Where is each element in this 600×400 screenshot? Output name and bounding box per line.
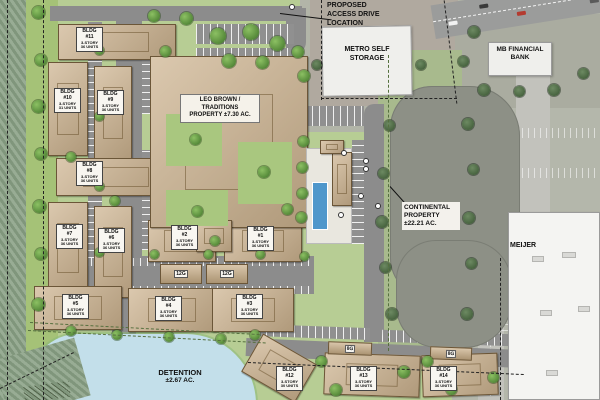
tree — [33, 200, 46, 213]
meijer-boundary-west — [500, 258, 501, 400]
callout-marker — [358, 193, 364, 199]
building-label-3: BLDG#3 3-STORY36 UNITS — [236, 294, 263, 319]
tree — [468, 164, 479, 175]
building-label-6: BLDG#6 3-STORY36 UNITS — [98, 228, 125, 253]
garage-label: 8G — [446, 349, 457, 357]
mb-financial-bank-label: MB FINANCIAL BANK — [490, 46, 550, 62]
tree — [180, 12, 193, 25]
proposed-access-drive-label: PROPOSED ACCESS DRIVE LOCATION — [327, 2, 405, 28]
tree — [462, 118, 474, 130]
metro-boundary-south — [321, 98, 457, 99]
car — [479, 3, 489, 8]
callout-marker — [289, 4, 295, 10]
tree — [548, 84, 560, 96]
tree — [150, 250, 159, 259]
tree — [222, 54, 236, 68]
garage-label: 8G — [345, 344, 356, 352]
tree — [292, 46, 304, 58]
tree — [256, 250, 265, 259]
detention-label: DETENTION ±2.67 AC. — [142, 368, 218, 386]
tree — [297, 162, 308, 173]
meijer-label: MEIJER — [510, 242, 554, 251]
tree — [243, 24, 259, 40]
woods-strip-west — [0, 0, 26, 400]
tree — [297, 188, 308, 199]
tree — [376, 216, 388, 228]
boundary-west — [7, 0, 8, 400]
continental-pond-lower — [396, 240, 512, 348]
continental-boundary-west — [388, 55, 389, 351]
site-plan-map: 12G 12G 8G 8G — [0, 0, 600, 400]
car — [517, 11, 527, 16]
callout-marker — [363, 166, 369, 172]
building-label-5: BLDG#5 3-STORY36 UNITS — [62, 294, 89, 319]
parking-clubhouse-east — [352, 140, 364, 244]
metro-self-storage-label: METRO SELF STORAGE — [327, 46, 407, 64]
garage-8g-east: 8G — [430, 346, 472, 360]
tree — [35, 248, 47, 260]
garage-12g-east: 12G — [206, 264, 248, 284]
building-label-9: BLDG#9 3-STORY36 UNITS — [97, 90, 124, 115]
tree — [384, 120, 395, 131]
road-north — [50, 6, 302, 21]
garage-label: 12G — [174, 270, 187, 278]
tree — [35, 54, 47, 66]
tree — [110, 196, 120, 206]
buffer-centerline — [43, 0, 44, 400]
building-label-14: BLDG#14 3-STORY36 UNITS — [430, 366, 457, 391]
tree — [35, 148, 47, 160]
callout-marker — [341, 150, 347, 156]
leo-brown-property-label: LEO BROWN / TRADITIONS PROPERTY ±7.30 AC… — [180, 94, 260, 123]
building-label-11: BLDG#11 3-STORY36 UNITS — [76, 27, 103, 52]
building-label-10: BLDG#10 3-STORY31 UNITS — [54, 88, 81, 113]
building-label-13: BLDG#13 3-STORY36 UNITS — [350, 366, 377, 391]
garage-12g-west: 12G — [160, 264, 202, 284]
rooftop-unit — [546, 370, 558, 376]
tree — [258, 166, 270, 178]
tree — [463, 212, 475, 224]
clubhouse — [332, 152, 352, 206]
tree — [148, 10, 160, 22]
rooftop-unit — [540, 310, 552, 316]
tree — [66, 326, 76, 336]
tree — [458, 56, 469, 67]
tree — [461, 308, 473, 320]
garage-8g-west: 8G — [328, 341, 372, 356]
aerial-parking-ticks — [516, 128, 600, 138]
tree — [300, 252, 309, 261]
tree — [190, 134, 201, 145]
tree — [298, 136, 309, 147]
continental-property-label: CONTINENTAL PROPERTY ±22.21 AC. — [402, 202, 460, 230]
tree — [210, 236, 220, 246]
building-label-12: BLDG#12 3-STORY30 UNITS — [276, 366, 303, 391]
callout-marker — [363, 158, 369, 164]
aerial-parking-ticks — [516, 168, 600, 178]
tree — [298, 70, 310, 82]
car — [590, 0, 600, 3]
tree — [478, 84, 490, 96]
tree — [256, 56, 269, 69]
tree — [330, 384, 342, 396]
car — [448, 20, 458, 25]
tree — [468, 26, 480, 38]
tree — [282, 204, 293, 215]
tree — [270, 36, 285, 51]
callout-marker — [375, 203, 381, 209]
callout-marker — [338, 212, 344, 218]
tree — [380, 262, 391, 273]
tree — [296, 212, 307, 223]
tree — [416, 60, 426, 70]
tree — [210, 28, 226, 44]
rooftop-unit — [532, 256, 544, 262]
tree — [514, 86, 525, 97]
metro-boundary-west — [321, 0, 322, 100]
tree — [204, 250, 213, 259]
tree — [160, 46, 171, 57]
building-label-4: BLDG#4 3-STORY36 UNITS — [155, 296, 182, 321]
garage-label: 12G — [220, 270, 233, 278]
building-label-2: BLDG#2 3-STORY36 UNITS — [171, 225, 198, 250]
tree — [466, 258, 477, 269]
rooftop-unit — [562, 252, 576, 258]
building-label-7: BLDG#7 3-STORY36 UNITS — [56, 224, 83, 249]
rooftop-unit — [578, 306, 590, 312]
building-label-1: BLDG#1 3-STORY36 UNITS — [247, 226, 274, 251]
tree — [66, 152, 76, 162]
tree — [578, 68, 589, 79]
building-label-8: BLDG#8 3-STORY36 UNITS — [76, 161, 103, 186]
swimming-pool — [312, 182, 328, 230]
tree — [192, 206, 203, 217]
